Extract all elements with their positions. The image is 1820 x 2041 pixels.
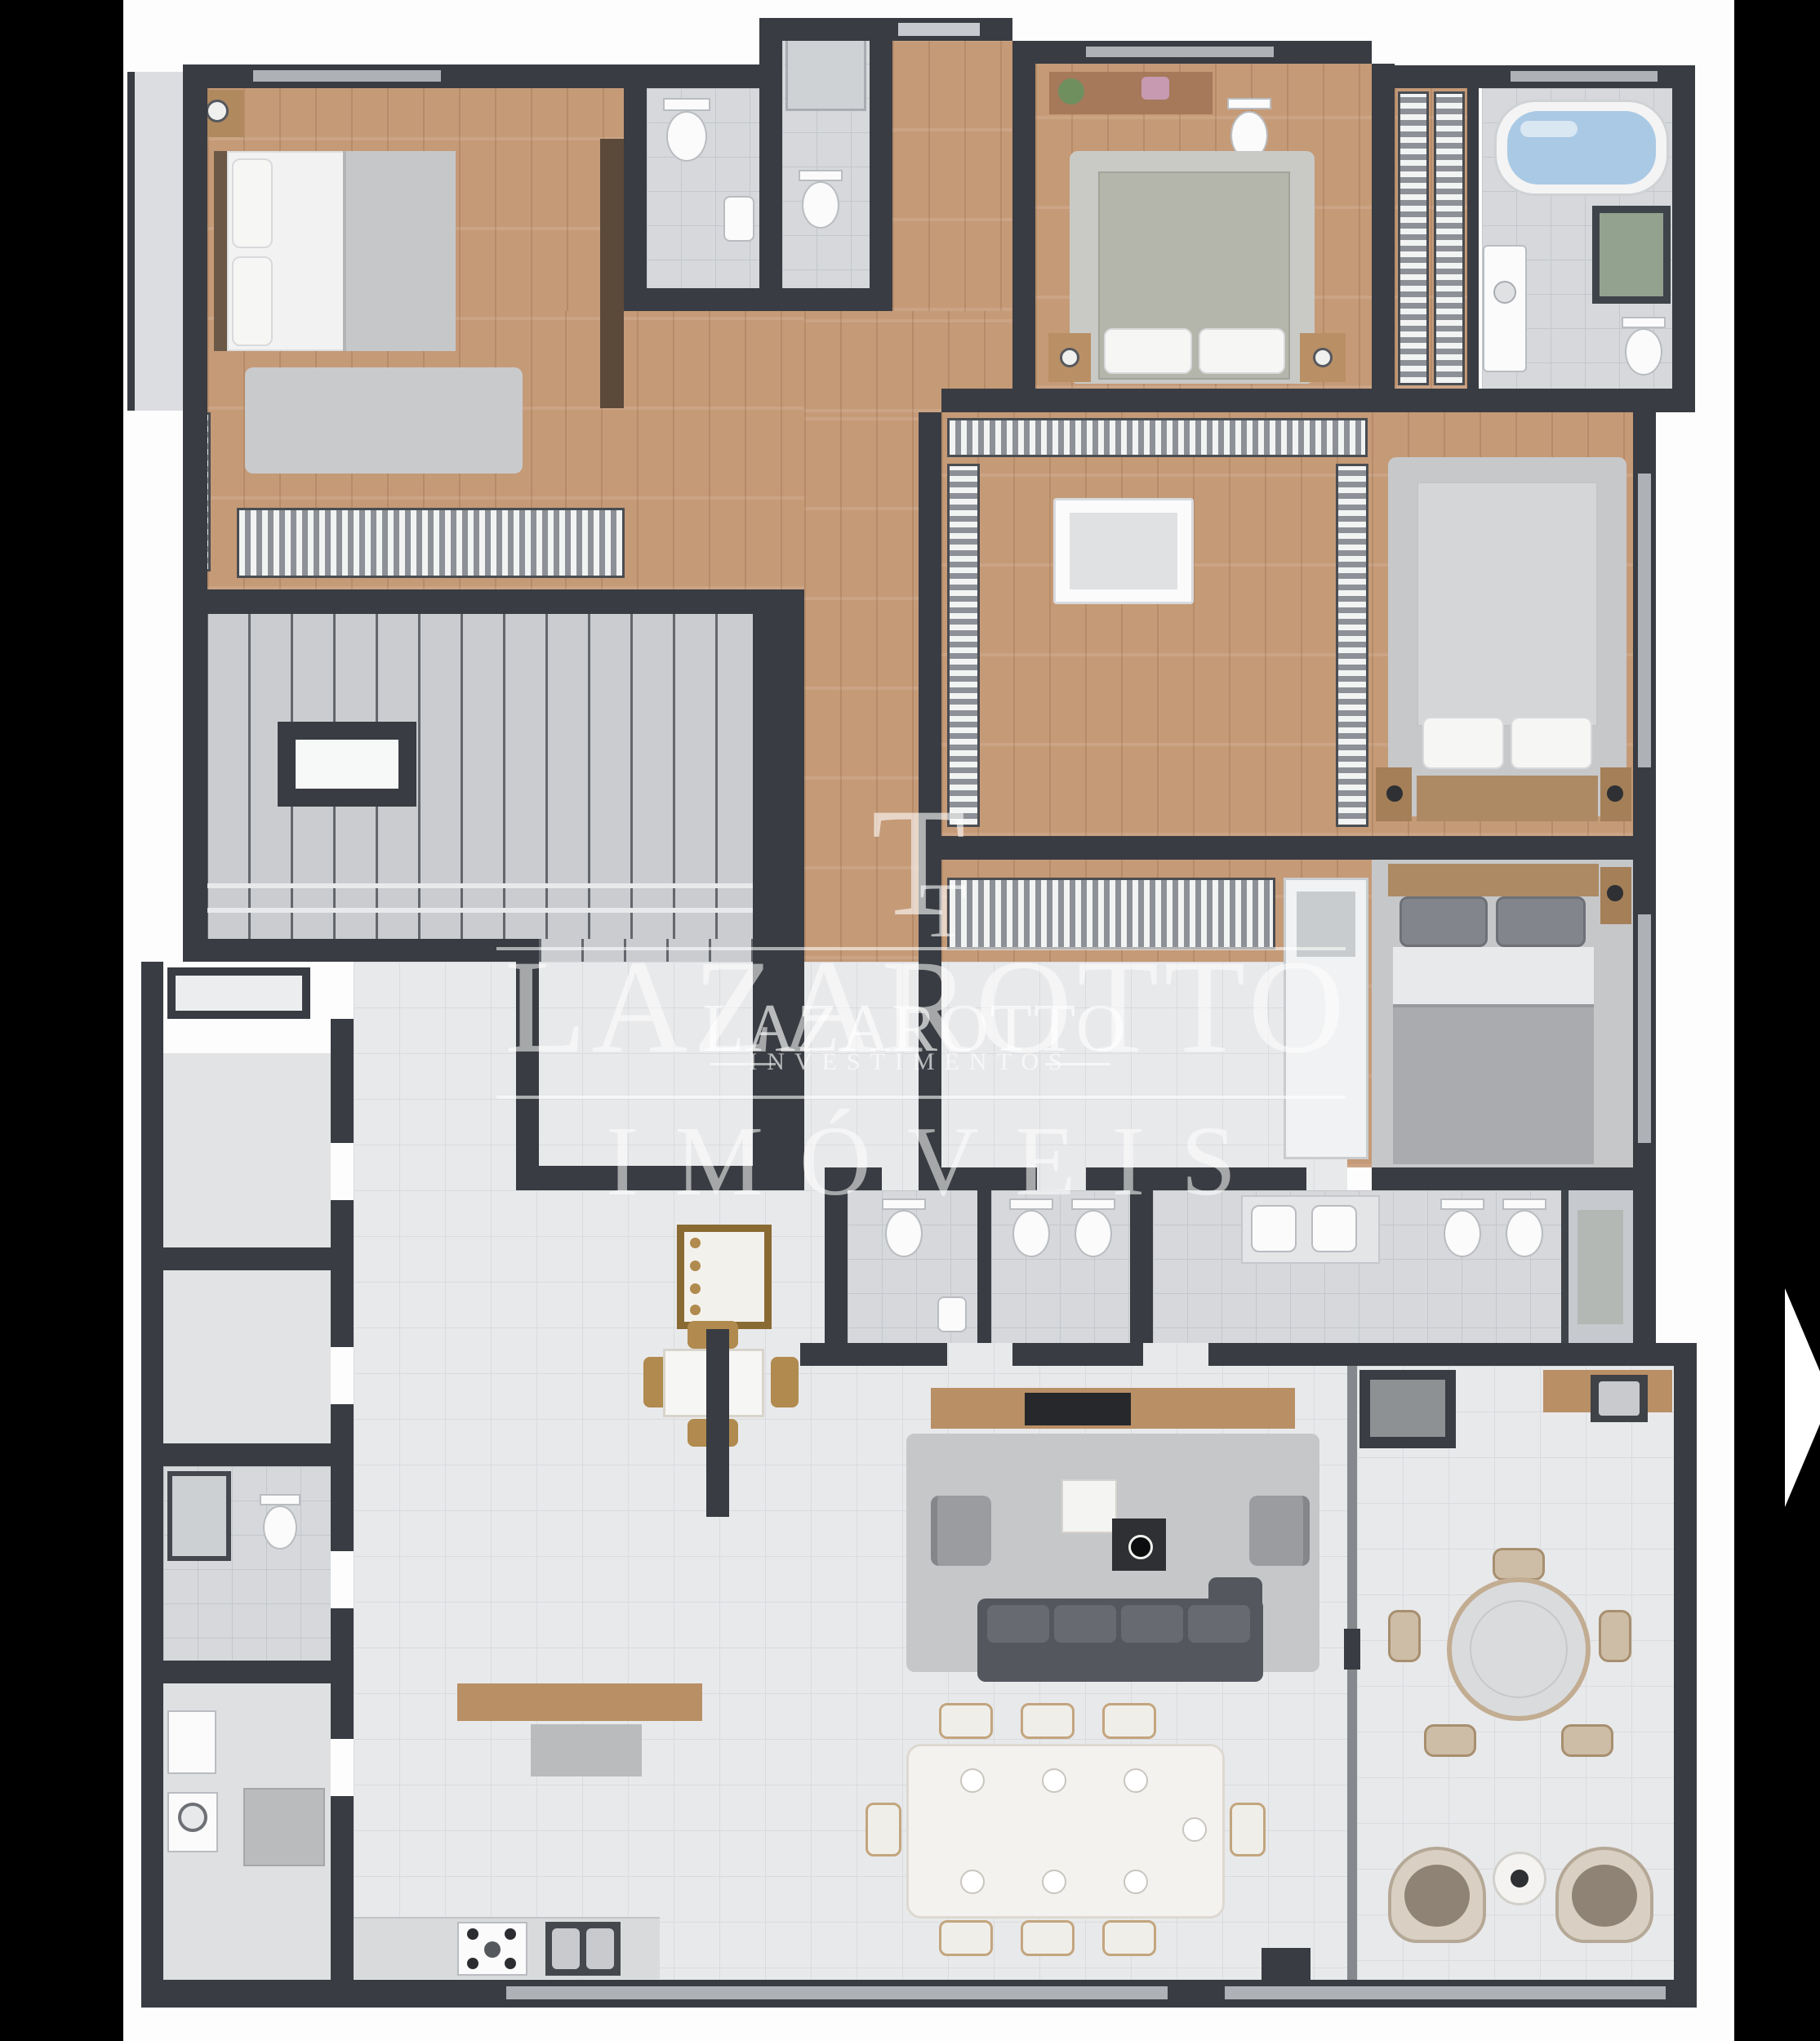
wall-service-right-4 (331, 1608, 354, 1739)
wall-bed1-bath1 (624, 70, 647, 311)
bedroom1-rug (245, 367, 523, 474)
wall-bath2-hall (870, 29, 892, 311)
balcony-outer-wall (127, 72, 135, 411)
window-top-suite2 (1086, 47, 1274, 57)
stove-center (484, 1941, 501, 1958)
bed4-pillow2 (1496, 896, 1586, 947)
wall-storage2-wc (141, 1443, 354, 1466)
closet2-shelves-right (1434, 91, 1465, 385)
wall-bath1-bath2 (759, 18, 782, 311)
bed2-pillow2 (1199, 328, 1285, 374)
closet3-shelves-top (947, 418, 1368, 457)
bar-bottle4 (690, 1305, 701, 1315)
wall-living-top-2 (1012, 1343, 1143, 1366)
wall-bar-stub (706, 1329, 729, 1517)
viewer-right-bar (1734, 0, 1820, 2041)
vent-shaft (167, 967, 310, 1019)
wall-suite2-closet2 (1372, 64, 1395, 412)
sofa-cushion3 (1121, 1605, 1183, 1643)
watermark-division-small: INVESTIMENTOS (702, 1050, 1119, 1074)
living-bottom-column (1262, 1948, 1310, 1980)
terrace-glass-post (1344, 1629, 1360, 1670)
terrace-chair-sw (1424, 1724, 1476, 1757)
wall-terrace-right (1674, 1366, 1697, 2008)
barbecue-grill (1370, 1380, 1445, 1437)
terrace-chair-w (1388, 1610, 1421, 1662)
wc2-bidet-bowl (1075, 1210, 1112, 1257)
bedroom2-toilet-tank (1227, 98, 1271, 109)
bed4-sheet (1393, 947, 1594, 1004)
closet2-shelves-left (1398, 91, 1429, 385)
wall-service-right-3 (331, 1404, 354, 1551)
bed1-lamp (206, 100, 229, 122)
stair-landing-line2 (206, 908, 753, 913)
stair-landing-line (206, 883, 753, 888)
wall-core-midleft (183, 939, 539, 962)
bed1-headboard (214, 151, 227, 351)
dining-table (906, 1744, 1225, 1919)
wall-storage1-storage2 (141, 1247, 354, 1270)
wall-wc-row-top-4 (1372, 1167, 1656, 1190)
wardrobe1-shelves (237, 508, 625, 578)
viewer-left-bar (0, 0, 123, 2041)
tv (1025, 1393, 1131, 1425)
bath3-toilet-tank (1440, 1198, 1484, 1210)
coffee-table-white (1061, 1479, 1117, 1533)
kitchen-wood-counter (457, 1683, 702, 1721)
plate2 (1042, 1768, 1066, 1793)
plate7 (1182, 1817, 1207, 1842)
dining-chair-b3 (1102, 1920, 1156, 1956)
bedroom1-tv-panel (600, 139, 624, 408)
wall-service-right-2 (331, 1200, 354, 1347)
elevator-cab (296, 740, 398, 789)
balcony-floor (127, 72, 185, 411)
bath3-shower-mat (1577, 1210, 1623, 1324)
window-right-suite4 (1638, 914, 1651, 1143)
bed4-lamp-right (1607, 885, 1623, 901)
wall-closet2-masterbath (1467, 88, 1479, 389)
wall-service-left (141, 962, 163, 2008)
plate4 (960, 1870, 985, 1894)
bar-bottle2 (690, 1261, 701, 1271)
lounge-cushion-right (1572, 1865, 1637, 1927)
kitchen-sink-basin2 (586, 1928, 614, 1969)
wall-under-baths (624, 288, 892, 311)
bath2-shower-tray (785, 33, 866, 111)
closet3-shelves-right (1336, 464, 1368, 827)
bed1-blanket (343, 151, 456, 351)
wall-suite2-bottom (941, 389, 1695, 412)
lounge-cushion-left (1404, 1865, 1470, 1927)
sofa-cushion4 (1188, 1605, 1250, 1643)
bath3-bidet-bowl (1506, 1210, 1543, 1257)
master-shower (1592, 206, 1671, 304)
bath3-sink2 (1311, 1205, 1357, 1252)
master-toilet-bowl (1625, 328, 1662, 376)
bed3-blanket (1417, 482, 1598, 727)
bath2-toilet-tank (799, 170, 843, 181)
plant-icon (1058, 78, 1084, 104)
bath3-toilet-bowl (1444, 1210, 1481, 1257)
wall-service-right-5 (331, 1796, 354, 2008)
kitchen-sink-basin1 (552, 1928, 580, 1969)
window-top-masterbath (1511, 71, 1658, 82)
bed4-headboard (1388, 864, 1599, 896)
closet3-floor (941, 412, 1372, 836)
terrace-table-inner (1470, 1600, 1568, 1698)
plate3 (1124, 1768, 1148, 1793)
toilet-tank (663, 98, 710, 111)
bar-bottle3 (690, 1283, 701, 1294)
dining-chair-t3 (1102, 1703, 1156, 1739)
wc1-toilet-bowl (885, 1210, 923, 1257)
armchair-right (1249, 1496, 1310, 1566)
dining-chair-right (1230, 1803, 1266, 1856)
bath1-sink (723, 196, 754, 242)
service-shower (167, 1471, 231, 1561)
bed2-lamp-right (1313, 348, 1333, 367)
wall-wc-laundry (141, 1661, 354, 1683)
bed3-lamp-left (1386, 785, 1403, 802)
service-toilet-bowl (263, 1505, 297, 1550)
hall-floor-entry (892, 41, 1012, 311)
wall-right-masterbath (1672, 88, 1695, 412)
wall-living-top-1 (800, 1343, 947, 1366)
bath3-bidet-tank (1502, 1198, 1546, 1210)
armchair-left (931, 1496, 991, 1566)
service-toilet-tank (260, 1494, 300, 1505)
dresser-decor (1141, 77, 1169, 100)
bed1-pillow2 (232, 256, 273, 346)
terrace-chair-n (1493, 1548, 1545, 1581)
terrace-glass-wall (1347, 1366, 1357, 1980)
wall-suite3-suite4 (941, 836, 1656, 860)
wc1-sink (937, 1296, 967, 1332)
plate6 (1124, 1870, 1148, 1894)
bath2-toilet-bowl (802, 181, 839, 229)
master-vanity (1483, 245, 1527, 372)
bed3-pillow (1422, 717, 1504, 769)
watermark-logo-dash-right (1045, 1063, 1110, 1065)
kitchen-island (531, 1724, 642, 1776)
coffee-table-decor (1128, 1535, 1153, 1559)
bar-bottle1 (690, 1238, 701, 1248)
dining-chair-b1 (939, 1920, 993, 1956)
bed3-headboard (1417, 776, 1598, 821)
wc2-toilet-bowl (1012, 1210, 1050, 1257)
stove-burner4 (505, 1958, 516, 1969)
watermark-logo-monogram-small: T (906, 872, 980, 949)
maid-bed (243, 1788, 325, 1866)
closet3-shelves-left (947, 464, 980, 827)
wall-core-right (753, 614, 804, 1190)
closet3-island-top (1070, 513, 1177, 589)
wall-core-top (183, 589, 804, 614)
terrace-sink-basin (1599, 1381, 1640, 1416)
bathtub-water-glare (1520, 121, 1577, 137)
sofa-cushion2 (1054, 1605, 1116, 1643)
bed4-blanket (1393, 1004, 1594, 1164)
dining-chair-b2 (1021, 1920, 1075, 1956)
watermark-rule-bottom (496, 1096, 1346, 1099)
terrace-chair-e (1599, 1610, 1631, 1662)
master-toilet-tank (1622, 317, 1666, 328)
master-vanity-sink (1493, 281, 1516, 304)
wall-left-main (183, 64, 207, 939)
window-right-suite3 (1638, 474, 1651, 767)
wall-hall-suite2 (1012, 41, 1035, 412)
stove-burner2 (505, 1928, 516, 1940)
stove-burner1 (467, 1928, 478, 1940)
plate1 (960, 1768, 985, 1793)
bathroom1-floor (647, 88, 759, 288)
washing-machine-drum (178, 1803, 207, 1832)
terrace-chair-se (1561, 1724, 1613, 1757)
sofa-cushion1 (987, 1605, 1049, 1643)
dining-chair-t2 (1021, 1703, 1075, 1739)
bed3-pillow2 (1511, 717, 1592, 769)
bed2-pillow (1104, 328, 1192, 374)
stove-burner3 (467, 1958, 478, 1969)
wall-service-right-1 (331, 1019, 354, 1143)
bed3-lamp-right (1607, 785, 1623, 802)
dining-chair-left (866, 1803, 901, 1856)
window-bottom-living (506, 1986, 1168, 1999)
plate5 (1042, 1870, 1066, 1894)
window-bottom-terrace (1225, 1986, 1666, 1999)
toilet-bowl (666, 111, 707, 162)
lounge-side-table-decor (1511, 1870, 1529, 1888)
window-top-suite1 (253, 70, 441, 82)
storage2-floor (163, 1270, 331, 1443)
laundry-tub (167, 1710, 216, 1774)
breakfast-chair-right (771, 1357, 799, 1407)
storage1-floor (163, 1053, 331, 1247)
bed2-lamp-left (1060, 348, 1079, 367)
wall-living-top-3 (1208, 1343, 1697, 1366)
real-estate-floor-plan-photo: LAZAROTTO IMÓVEIS T T LAZAROTTO INVESTIM… (0, 0, 1820, 2041)
bed4-pillow (1399, 896, 1488, 947)
entry-door (898, 23, 980, 36)
bed1-pillow (232, 158, 273, 248)
dining-chair-t1 (939, 1703, 993, 1739)
watermark-division-large: IMÓVEIS (572, 1112, 1306, 1212)
